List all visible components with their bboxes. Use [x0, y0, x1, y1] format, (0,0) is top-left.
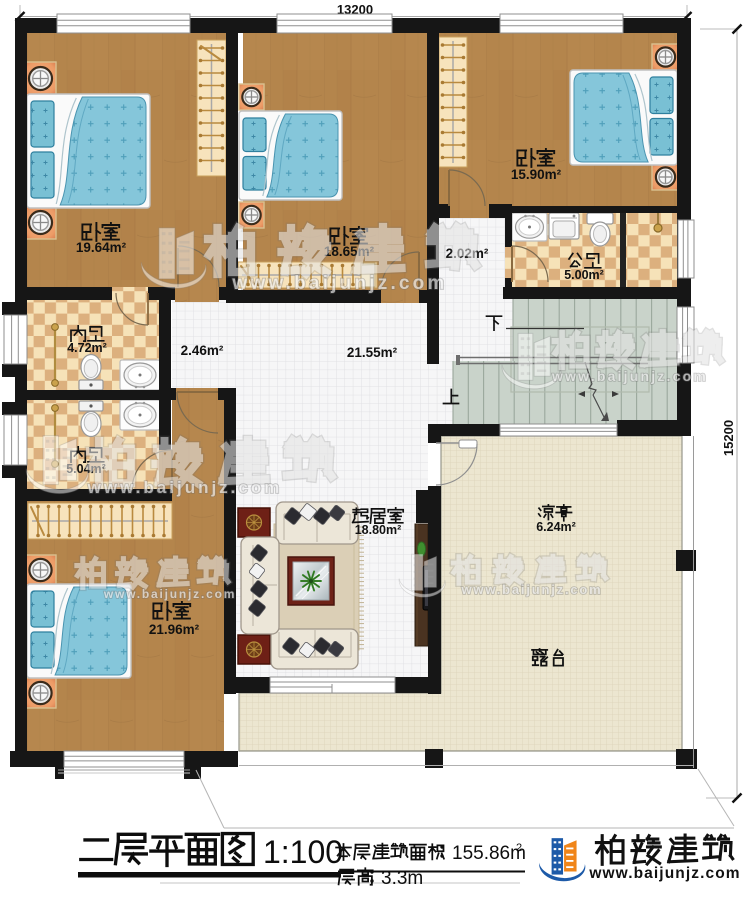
- svg-text:www.baijunjz.com: www.baijunjz.com: [461, 582, 603, 597]
- svg-text:6.24m²: 6.24m²: [536, 520, 576, 534]
- svg-text:19.64m²: 19.64m²: [76, 240, 127, 255]
- svg-text:www.baijunjz.com: www.baijunjz.com: [87, 478, 283, 497]
- svg-text:5.00m²: 5.00m²: [564, 268, 604, 282]
- svg-text:3.3m: 3.3m: [381, 868, 423, 889]
- svg-text:www.baijunjz.com: www.baijunjz.com: [551, 368, 708, 384]
- svg-text:2: 2: [516, 842, 522, 854]
- svg-text:1:100: 1:100: [263, 834, 343, 870]
- svg-text:www.baijunjz.com: www.baijunjz.com: [103, 587, 236, 601]
- svg-text:15200: 15200: [721, 420, 736, 456]
- svg-text:www.baijunjz.com: www.baijunjz.com: [231, 273, 447, 294]
- svg-text:www.baijunjz.com: www.baijunjz.com: [588, 865, 740, 882]
- svg-text:4.72m²: 4.72m²: [67, 341, 107, 355]
- svg-text:155.86m: 155.86m: [452, 843, 526, 864]
- svg-text:15.90m²: 15.90m²: [511, 167, 562, 182]
- svg-text:18.80m²: 18.80m²: [355, 523, 402, 537]
- svg-text:21.96m²: 21.96m²: [149, 622, 200, 637]
- svg-text:2.46m²: 2.46m²: [181, 343, 224, 358]
- svg-text:21.55m²: 21.55m²: [347, 345, 398, 360]
